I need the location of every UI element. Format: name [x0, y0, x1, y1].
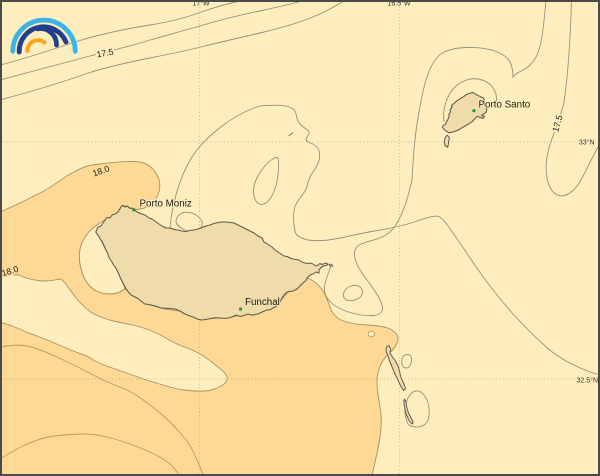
svg-text:Porto Santo: Porto Santo — [479, 100, 531, 111]
svg-text:33°N: 33°N — [579, 139, 595, 147]
svg-text:Funchal: Funchal — [245, 297, 280, 308]
svg-text:32.5°N: 32.5°N — [577, 377, 598, 385]
svg-text:Porto Moniz: Porto Moniz — [140, 199, 192, 210]
